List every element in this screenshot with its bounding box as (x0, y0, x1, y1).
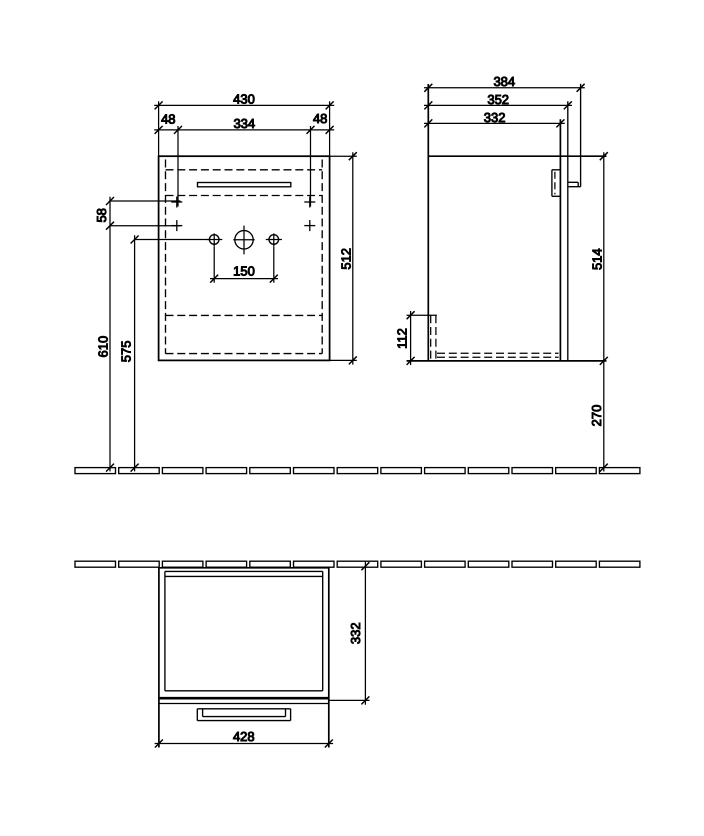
svg-text:512: 512 (339, 248, 354, 270)
svg-text:384: 384 (493, 74, 515, 89)
svg-text:332: 332 (484, 110, 506, 125)
svg-text:270: 270 (589, 405, 604, 427)
svg-text:48: 48 (161, 112, 175, 127)
svg-text:430: 430 (233, 92, 255, 107)
svg-text:352: 352 (487, 92, 509, 107)
svg-text:150: 150 (233, 264, 255, 279)
svg-text:514: 514 (590, 248, 605, 270)
svg-text:58: 58 (94, 208, 109, 222)
svg-text:112: 112 (394, 328, 409, 349)
svg-text:334: 334 (233, 116, 255, 131)
svg-text:48: 48 (313, 111, 327, 126)
svg-text:428: 428 (233, 729, 255, 744)
svg-text:610: 610 (96, 336, 111, 358)
svg-text:575: 575 (119, 341, 134, 363)
svg-text:332: 332 (348, 622, 363, 644)
